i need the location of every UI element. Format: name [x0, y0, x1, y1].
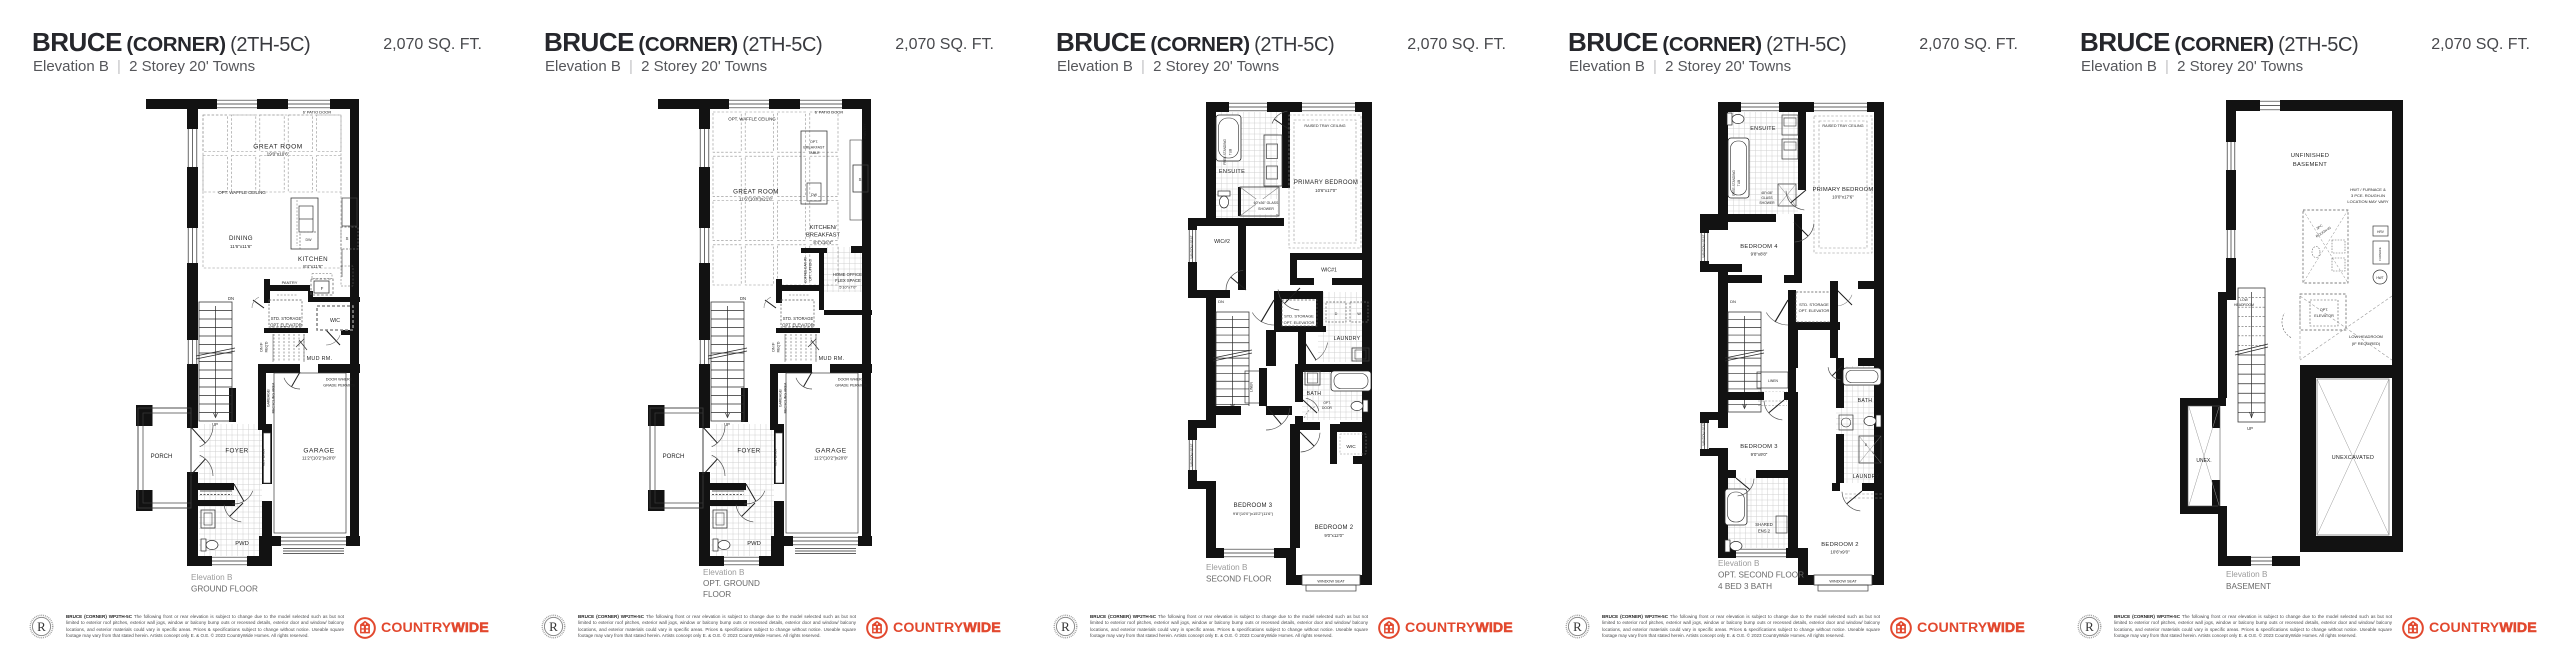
svg-text:FOYER: FOYER	[225, 448, 248, 455]
svg-text:48"x36": 48"x36"	[1761, 191, 1773, 195]
svg-text:4 BED 3 BATH: 4 BED 3 BATH	[1718, 582, 1772, 591]
svg-text:DOOR WHERE: DOOR WHERE	[838, 378, 865, 382]
svg-text:BEDROOM 2: BEDROOM 2	[1821, 542, 1859, 548]
svg-text:LOCATION MAY VARY: LOCATION MAY VARY	[2347, 199, 2389, 204]
svg-text:WINDOW SEAT: WINDOW SEAT	[1829, 580, 1857, 584]
svg-text:PWD: PWD	[747, 541, 761, 547]
svg-text:REQ'D: REQ'D	[777, 341, 781, 352]
svg-text:KEY DROP: KEY DROP	[262, 447, 266, 466]
svg-text:ENSUITE: ENSUITE	[1750, 126, 1776, 132]
svg-text:WINDOW SEAT: WINDOW SEAT	[1190, 443, 1194, 466]
svg-text:BEDROOM 3: BEDROOM 3	[1740, 444, 1778, 450]
svg-text:60"x36" GLASS: 60"x36" GLASS	[1254, 201, 1279, 205]
svg-text:Elevation B: Elevation B	[1718, 559, 1760, 568]
svg-text:SHARED: SHARED	[1755, 522, 1772, 527]
svg-text:WIC#1: WIC#1	[1321, 268, 1337, 274]
svg-text:OPT. WAFFLE CEILING: OPT. WAFFLE CEILING	[218, 190, 266, 195]
svg-text:BASEMENT: BASEMENT	[2293, 162, 2327, 168]
svg-text:9'0"x9'0": 9'0"x9'0"	[1751, 452, 1768, 457]
svg-text:Elevation B: Elevation B	[191, 573, 233, 582]
svg-text:TUB: TUB	[1229, 149, 1233, 155]
svg-text:WINDOW SEAT: WINDOW SEAT	[1702, 234, 1706, 257]
svg-text:KITCHEN/: KITCHEN/	[809, 225, 836, 231]
svg-text:(IF REQUIRED): (IF REQUIRED)	[2352, 341, 2381, 346]
svg-text:COFFEE BAR W/: COFFEE BAR W/	[804, 257, 808, 283]
svg-text:BASEMENT: BASEMENT	[2226, 582, 2271, 591]
svg-text:R: R	[2085, 618, 2094, 633]
svg-text:D: D	[1335, 312, 1338, 316]
svg-text:HWT / FURNACE &: HWT / FURNACE &	[2350, 187, 2386, 192]
svg-text:BEDROOM 3: BEDROOM 3	[1234, 503, 1273, 509]
svg-text:FLOOR: FLOOR	[703, 590, 731, 599]
svg-text:REQ'D: REQ'D	[265, 341, 269, 352]
svg-text:UNFINISHED: UNFINISHED	[2291, 153, 2329, 159]
svg-text:6' PATIO DOOR: 6' PATIO DOOR	[303, 110, 332, 115]
svg-text:OPT. SECOND FLOOR: OPT. SECOND FLOOR	[1718, 571, 1804, 580]
svg-text:UP: UP	[2247, 426, 2253, 431]
svg-text:6' PATIO DOOR: 6' PATIO DOOR	[815, 110, 844, 115]
svg-text:9'0"x12'0": 9'0"x12'0"	[1324, 533, 1344, 538]
svg-text:BREAKFAST: BREAKFAST	[806, 233, 841, 239]
svg-text:9'8"(10'0")x15'2"(11'6"): 9'8"(10'0")x15'2"(11'6")	[1233, 511, 1274, 516]
svg-text:3 PCE. ROUGH-IN: 3 PCE. ROUGH-IN	[2351, 193, 2385, 198]
svg-text:PWD: PWD	[235, 541, 249, 547]
svg-text:WINDOW SEAT: WINDOW SEAT	[1317, 580, 1345, 584]
svg-text:ENS.2: ENS.2	[1758, 529, 1771, 534]
svg-text:OPT. ELEVATOR: OPT. ELEVATOR	[1799, 308, 1830, 313]
svg-text:UNEXCAVATED: UNEXCAVATED	[2332, 455, 2375, 461]
svg-text:LOW: LOW	[2240, 298, 2249, 302]
svg-text:OPT.: OPT.	[810, 140, 818, 144]
svg-text:SHOWER: SHOWER	[1759, 201, 1775, 205]
svg-text:R: R	[549, 618, 558, 633]
svg-text:DINING: DINING	[229, 235, 253, 242]
svg-text:WINDOW SEAT: WINDOW SEAT	[1702, 422, 1706, 445]
svg-text:HEADROOM: HEADROOM	[2234, 303, 2254, 307]
svg-text:Elevation B: Elevation B	[1206, 563, 1248, 572]
svg-text:Elevation B: Elevation B	[2226, 570, 2268, 579]
svg-text:RAISED TRAY CEILING: RAISED TRAY CEILING	[1304, 124, 1345, 128]
svg-text:11'6"x11'6": 11'6"x11'6"	[230, 244, 252, 249]
svg-text:BATH: BATH	[1307, 391, 1322, 397]
svg-text:KEY DROP: KEY DROP	[774, 447, 778, 466]
svg-text:Elevation B: Elevation B	[703, 568, 745, 577]
svg-text:GARBAGE/: GARBAGE/	[267, 389, 271, 407]
svg-text:HWT: HWT	[2376, 276, 2383, 280]
svg-text:DOOR: DOOR	[1322, 406, 1333, 410]
svg-text:BATH: BATH	[1858, 398, 1873, 404]
svg-text:DOOR WHERE: DOOR WHERE	[326, 378, 353, 382]
svg-text:GRADE PERMITS: GRADE PERMITS	[323, 384, 355, 388]
svg-text:GARAGE: GARAGE	[815, 448, 846, 455]
svg-text:FOYER: FOYER	[737, 448, 760, 455]
svg-text:OPT. ELEVATOR: OPT. ELEVATOR	[270, 323, 301, 328]
svg-text:LAUNDRY: LAUNDRY	[1334, 336, 1361, 342]
svg-text:DN: DN	[740, 296, 746, 301]
svg-text:TUB: TUB	[1737, 180, 1741, 186]
svg-text:DN: DN	[1730, 299, 1736, 304]
svg-text:ENSUITE: ENSUITE	[1219, 169, 1245, 175]
svg-text:RAISED TRAY CEILING: RAISED TRAY CEILING	[1822, 124, 1863, 128]
svg-text:GREAT ROOM: GREAT ROOM	[733, 189, 779, 196]
svg-text:GRADE PERMITS: GRADE PERMITS	[835, 384, 867, 388]
svg-text:10'0"x17'6": 10'0"x17'6"	[1832, 195, 1854, 200]
svg-text:DN: DN	[1218, 299, 1224, 304]
svg-text:STD. STORAGE: STD. STORAGE	[271, 316, 302, 321]
svg-text:10'6"x9'0": 10'6"x9'0"	[1830, 550, 1850, 555]
svg-text:FLEX SPACE: FLEX SPACE	[835, 278, 861, 283]
svg-text:OPT. UPPERS: OPT. UPPERS	[809, 258, 813, 281]
svg-text:LOW HEADROOM: LOW HEADROOM	[2349, 334, 2383, 339]
svg-text:DN: DN	[228, 296, 234, 301]
svg-text:HRV: HRV	[2377, 230, 2385, 234]
svg-text:11'2"(10'2")x20'0": 11'2"(10'2")x20'0"	[814, 456, 848, 461]
svg-text:SHOWER: SHOWER	[1258, 207, 1274, 211]
svg-text:STD. STORAGE: STD. STORAGE	[1799, 302, 1829, 307]
svg-text:W: W	[1357, 312, 1361, 316]
svg-text:PORCH: PORCH	[151, 454, 173, 460]
svg-text:BREAKFAST: BREAKFAST	[803, 146, 825, 150]
svg-text:GROUND FLOOR: GROUND FLOOR	[191, 585, 258, 594]
svg-text:RECYCLING AREA: RECYCLING AREA	[784, 382, 788, 413]
svg-text:FREE-STANDING: FREE-STANDING	[1223, 139, 1227, 165]
svg-text:KITCHEN: KITCHEN	[298, 256, 328, 263]
svg-text:PRIMARY BEDROOM: PRIMARY BEDROOM	[1294, 180, 1358, 186]
svg-text:11'6"(10'8")x21'0": 11'6"(10'8")x21'0"	[739, 197, 773, 202]
svg-text:11'2"(10'2")x20'0": 11'2"(10'2")x20'0"	[302, 456, 336, 461]
svg-text:BEDROOM 4: BEDROOM 4	[1740, 244, 1778, 250]
svg-text:LINEN: LINEN	[1250, 381, 1254, 392]
svg-text:WIC#2: WIC#2	[1214, 239, 1230, 245]
svg-text:OPT. WAFFLE CEILING: OPT. WAFFLE CEILING	[728, 117, 776, 122]
svg-text:LAUNDRY: LAUNDRY	[1853, 474, 1880, 480]
svg-text:LINEN: LINEN	[1768, 379, 1779, 383]
svg-text:DW: DW	[306, 238, 313, 242]
svg-text:OPT. GROUND: OPT. GROUND	[703, 579, 760, 588]
svg-text:HOME OFFICE/: HOME OFFICE/	[833, 272, 864, 277]
svg-text:WIC: WIC	[330, 318, 340, 324]
svg-text:5'10"x7'0": 5'10"x7'0"	[839, 285, 857, 290]
svg-text:RECYCLING AREA: RECYCLING AREA	[272, 382, 276, 413]
svg-text:GARAGE: GARAGE	[303, 448, 334, 455]
svg-text:R: R	[1061, 618, 1070, 633]
svg-text:OPT.: OPT.	[1323, 401, 1330, 405]
svg-text:19'0"x10'6": 19'0"x10'6"	[267, 152, 290, 157]
svg-text:PORCH: PORCH	[663, 454, 685, 460]
svg-text:BEDROOM 2: BEDROOM 2	[1315, 525, 1354, 531]
svg-text:R: R	[37, 618, 46, 633]
svg-text:S: S	[346, 236, 349, 241]
svg-text:WINDOW SEAT: WINDOW SEAT	[1190, 235, 1194, 258]
svg-text:FURNACE: FURNACE	[2378, 247, 2382, 261]
svg-text:8'4"x11'6": 8'4"x11'6"	[303, 264, 323, 269]
svg-text:PANTRY: PANTRY	[282, 280, 298, 285]
svg-text:OPT. ELEVATOR: OPT. ELEVATOR	[1284, 320, 1315, 325]
svg-text:DN IF: DN IF	[260, 342, 264, 351]
svg-text:WIC: WIC	[1346, 444, 1356, 450]
svg-text:PANTRY: PANTRY	[863, 123, 867, 139]
svg-text:STD. STORAGE: STD. STORAGE	[1284, 314, 1314, 319]
svg-text:GREAT ROOM: GREAT ROOM	[253, 144, 302, 151]
svg-text:8'4"x16'4": 8'4"x16'4"	[813, 240, 833, 245]
svg-text:MUD RM.: MUD RM.	[307, 356, 333, 362]
svg-text:R: R	[1573, 618, 1582, 633]
svg-text:OPT. ELEVATOR: OPT. ELEVATOR	[782, 323, 813, 328]
svg-text:OPT.: OPT.	[2320, 308, 2328, 312]
svg-text:DW: DW	[811, 193, 818, 197]
svg-text:10'6"x17'0": 10'6"x17'0"	[1315, 188, 1337, 193]
svg-text:GARBAGE/: GARBAGE/	[779, 389, 783, 407]
svg-text:SECOND FLOOR: SECOND FLOOR	[1206, 575, 1272, 584]
svg-text:PRIMARY BEDROOM: PRIMARY BEDROOM	[1813, 187, 1874, 193]
svg-text:UNEX.: UNEX.	[2196, 458, 2211, 464]
svg-text:FREE-STANDING: FREE-STANDING	[1732, 170, 1736, 196]
svg-text:S: S	[859, 177, 862, 182]
svg-text:9'8"x8'8": 9'8"x8'8"	[1751, 252, 1768, 257]
svg-text:F: F	[321, 286, 324, 291]
svg-text:GLASS: GLASS	[1761, 196, 1773, 200]
svg-text:STD. STORAGE: STD. STORAGE	[783, 316, 814, 321]
svg-text:DN IF: DN IF	[772, 342, 776, 351]
svg-text:MUD RM.: MUD RM.	[819, 356, 845, 362]
svg-text:TABLE: TABLE	[808, 151, 820, 155]
